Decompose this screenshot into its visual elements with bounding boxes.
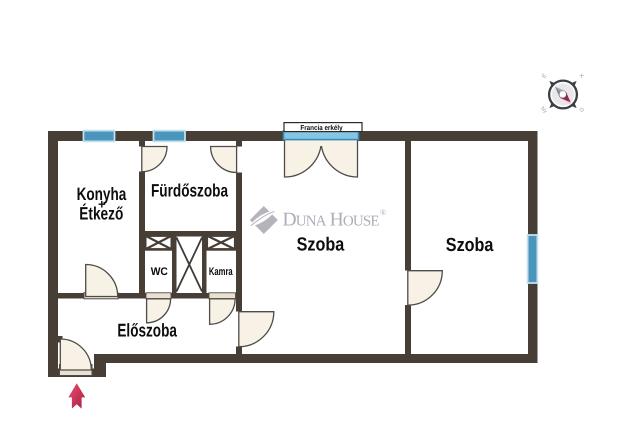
svg-text:WC: WC: [151, 266, 168, 278]
svg-text:Szoba: Szoba: [297, 235, 345, 256]
svg-text:Előszoba: Előszoba: [117, 320, 177, 341]
svg-text:Francia erkély: Francia erkély: [300, 123, 342, 132]
svg-text:®: ®: [380, 208, 386, 217]
svg-text:Fürdőszoba: Fürdőszoba: [151, 180, 229, 200]
svg-text:Kamra: Kamra: [209, 266, 233, 278]
svg-text:Étkező: Étkező: [79, 203, 123, 223]
svg-text:DUNA HOUSE: DUNA HOUSE: [283, 209, 380, 230]
svg-text:Szoba: Szoba: [446, 235, 494, 256]
